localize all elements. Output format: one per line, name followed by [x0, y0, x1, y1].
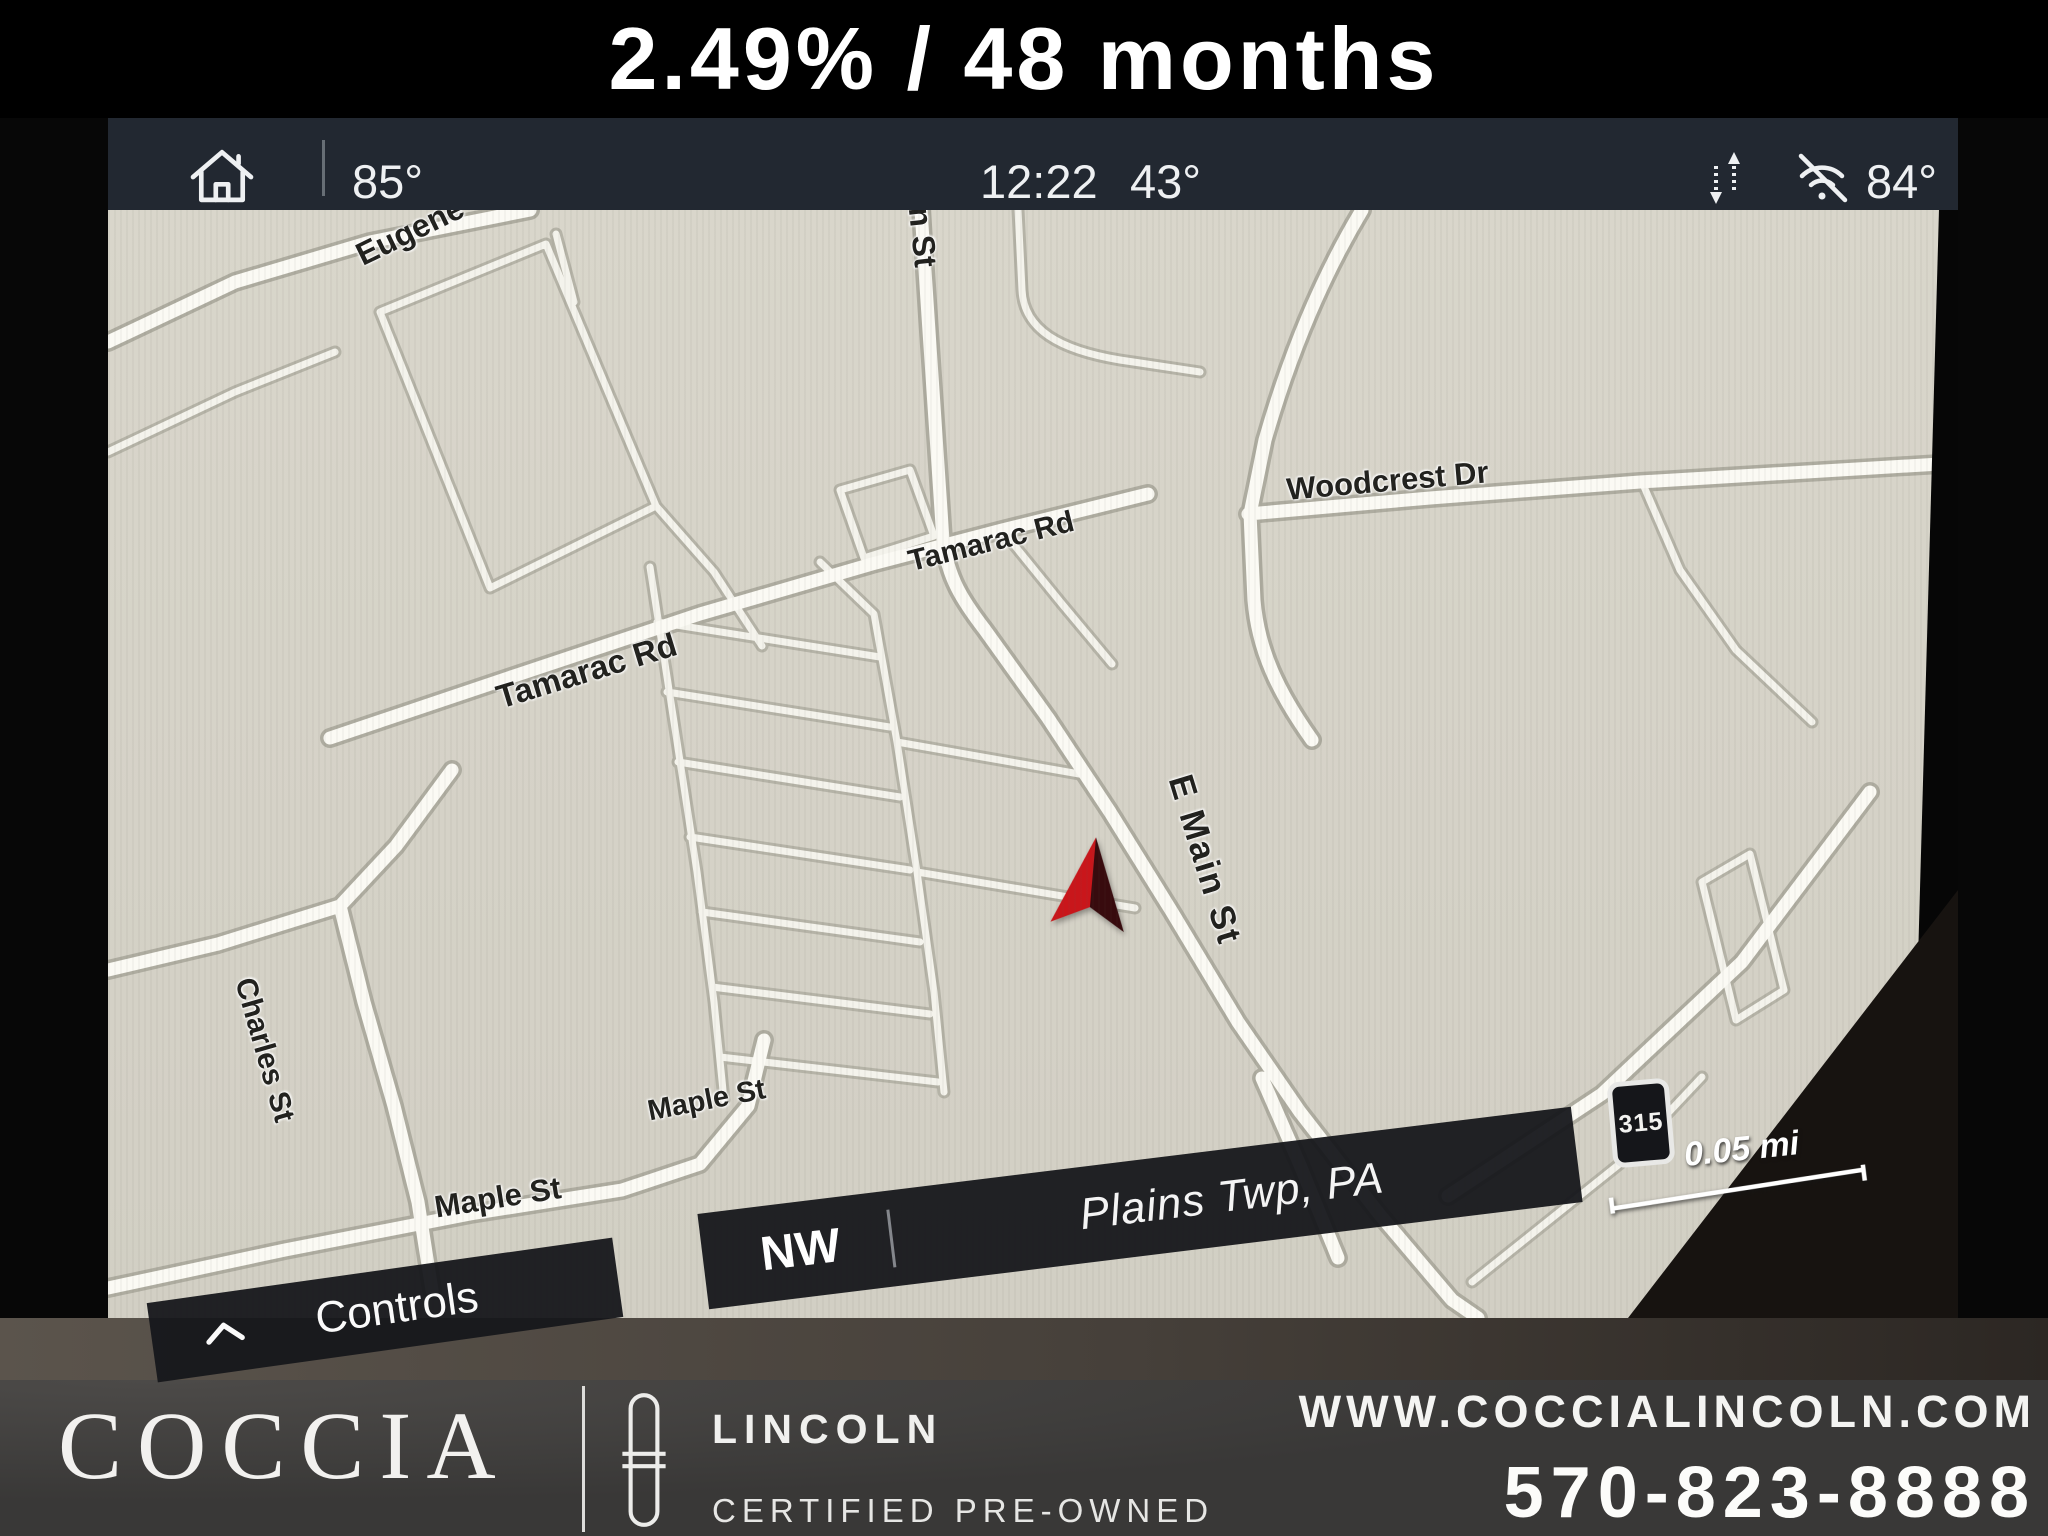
- map-canvas[interactable]: Eugene Main St Woodcrest Dr Tamarac Rd T…: [108, 210, 1958, 1318]
- compass-button[interactable]: NW: [757, 1211, 893, 1281]
- cpo-program: CERTIFIED PRE-OWNED: [712, 1492, 1214, 1530]
- promo-banner: 2.49% / 48 months: [0, 0, 2048, 118]
- lincoln-star-icon: [612, 1390, 676, 1530]
- chevron-up-icon: [202, 1318, 247, 1348]
- roads-layer: [108, 210, 1958, 1318]
- dealer-website: WWW.COCCIALINCOLN.COM: [1299, 1386, 2036, 1438]
- route-number: 315: [1617, 1107, 1664, 1140]
- clock: 12:22: [980, 154, 1098, 209]
- route-shield-315: 315: [1606, 1077, 1675, 1168]
- nav-arrow-icon: [1044, 830, 1136, 937]
- dealer-phone: 570-823-8888: [1504, 1452, 2036, 1534]
- updown-arrows-icon: [1706, 150, 1744, 206]
- promo-offer-text: 2.49% / 48 months: [609, 8, 1440, 110]
- outside-temp: 43°: [1130, 154, 1201, 209]
- statusbar-divider: [322, 140, 325, 196]
- passenger-temp[interactable]: 84°: [1866, 154, 1937, 209]
- wifi-off-icon: [1792, 150, 1852, 206]
- brand-name: LINCOLN: [712, 1406, 943, 1453]
- status-bar: 85° 12:22 43° 84°: [108, 118, 1958, 210]
- footer-divider: [582, 1386, 585, 1532]
- home-icon[interactable]: [186, 146, 258, 204]
- dealer-logo: COCCIA: [58, 1390, 511, 1501]
- infotainment-screen: 85° 12:22 43° 84°: [108, 118, 1958, 1318]
- driver-temp[interactable]: 85°: [352, 154, 423, 209]
